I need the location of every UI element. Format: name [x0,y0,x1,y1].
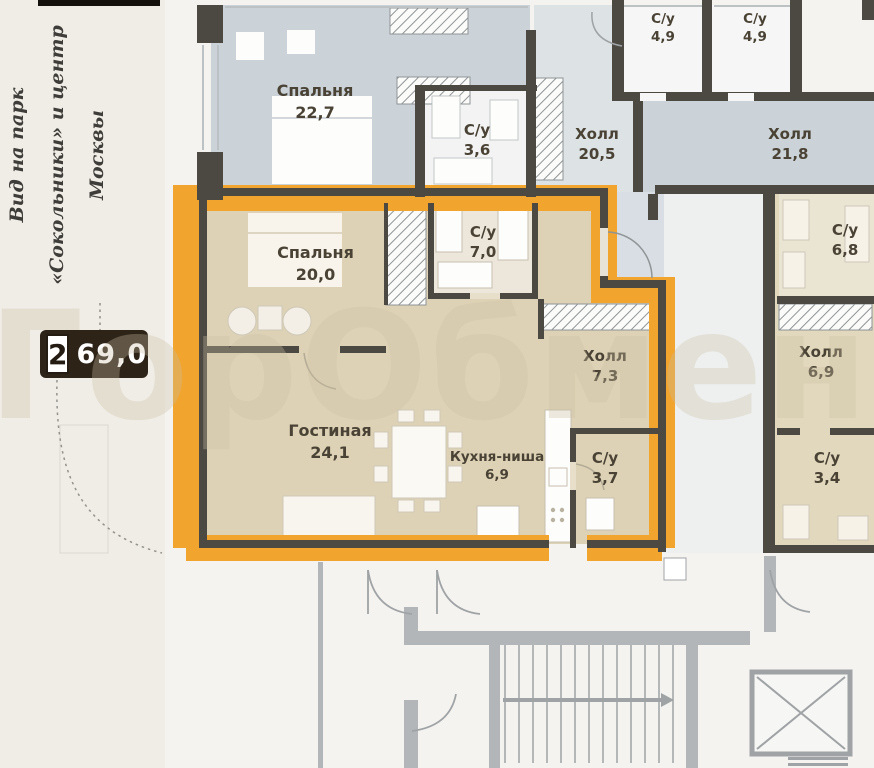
room-label-apt-kitchen-6-9: Кухня-ниша6,9 [422,448,572,484]
room-label-apt-living-24-1: Гостиная24,1 [256,420,404,463]
room-label-bath-3-6: С/у3,6 [432,120,522,161]
floorplan-drawing [0,0,874,768]
room-label-apt-bedroom-20-0: Спальня20,0 [243,242,388,285]
view-note: Вид на парк «Сокольники» и центр Москвы [0,15,117,295]
room-label-bath-3-4: С/у3,4 [782,448,872,489]
view-note-line1: Вид [6,179,28,222]
room-label-apt-hall-7-3: Холл7,3 [560,346,650,387]
apartment-badge: 2 69,0 [40,330,148,378]
room-label-hall-21-8: Холл21,8 [746,124,834,165]
badge-room-count: 2 [46,334,69,374]
room-label-bath-6-8: С/у6,8 [800,220,874,261]
floorplan-page: Вид на парк «Сокольники» и центр Москвы … [0,0,874,768]
badge-total-area: 69,0 [76,339,147,370]
top-edge-bar [38,0,160,6]
room-label-bath-4-9a: С/у4,9 [620,10,706,46]
room-label-apt-bath-7-0: С/у7,0 [438,222,528,263]
room-label-bath-4-9b: С/у4,9 [712,10,798,46]
room-label-hall-20-5: Холл20,5 [552,124,642,165]
room-label-hall-6-9: Холл6,9 [776,342,866,383]
room-label-apt-bath-3-7: С/у3,7 [560,448,650,489]
room-label-bedroom-22-7: Спальня22,7 [245,80,385,123]
